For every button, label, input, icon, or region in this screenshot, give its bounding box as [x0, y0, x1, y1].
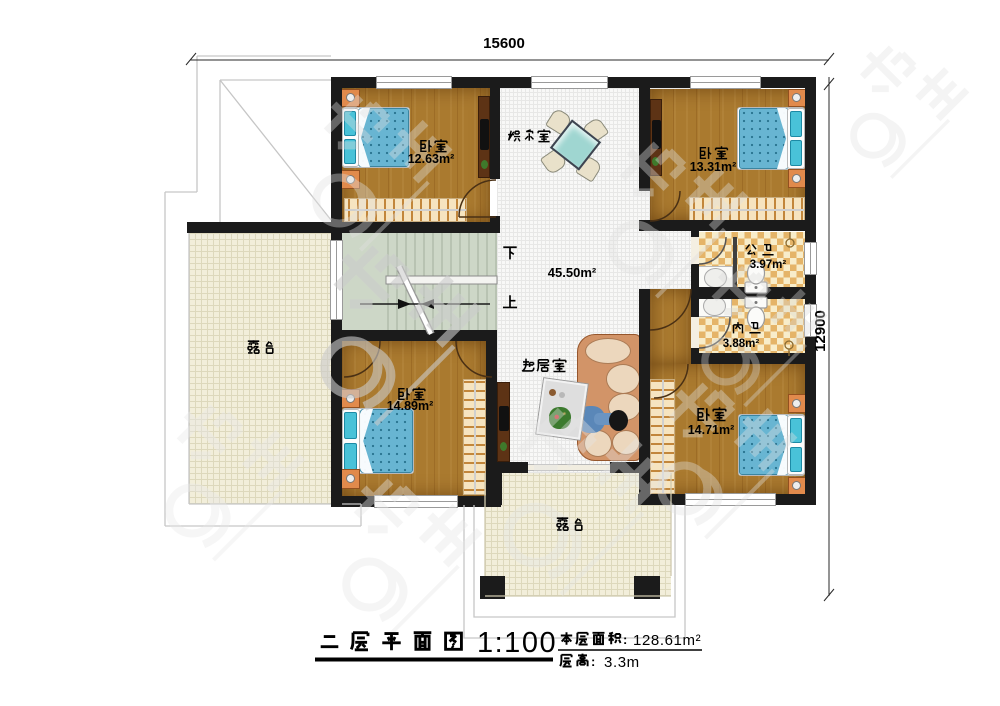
svg-text:14.89m²: 14.89m² [387, 399, 434, 413]
svg-text:12.63m²: 12.63m² [408, 152, 455, 166]
svg-text:128.61m²: 128.61m² [633, 632, 701, 649]
svg-text::: : [623, 632, 627, 647]
svg-text:1:100: 1:100 [477, 627, 557, 659]
svg-text:3.3m: 3.3m [604, 654, 640, 671]
svg-text::: : [591, 654, 595, 669]
svg-text:3.88m²: 3.88m² [723, 338, 760, 350]
svg-text:15600: 15600 [483, 35, 525, 52]
svg-text:13.31m²: 13.31m² [690, 160, 737, 174]
svg-text:3.97m²: 3.97m² [750, 259, 787, 271]
svg-text:45.50m²: 45.50m² [548, 265, 597, 280]
svg-text:14.71m²: 14.71m² [688, 423, 735, 437]
